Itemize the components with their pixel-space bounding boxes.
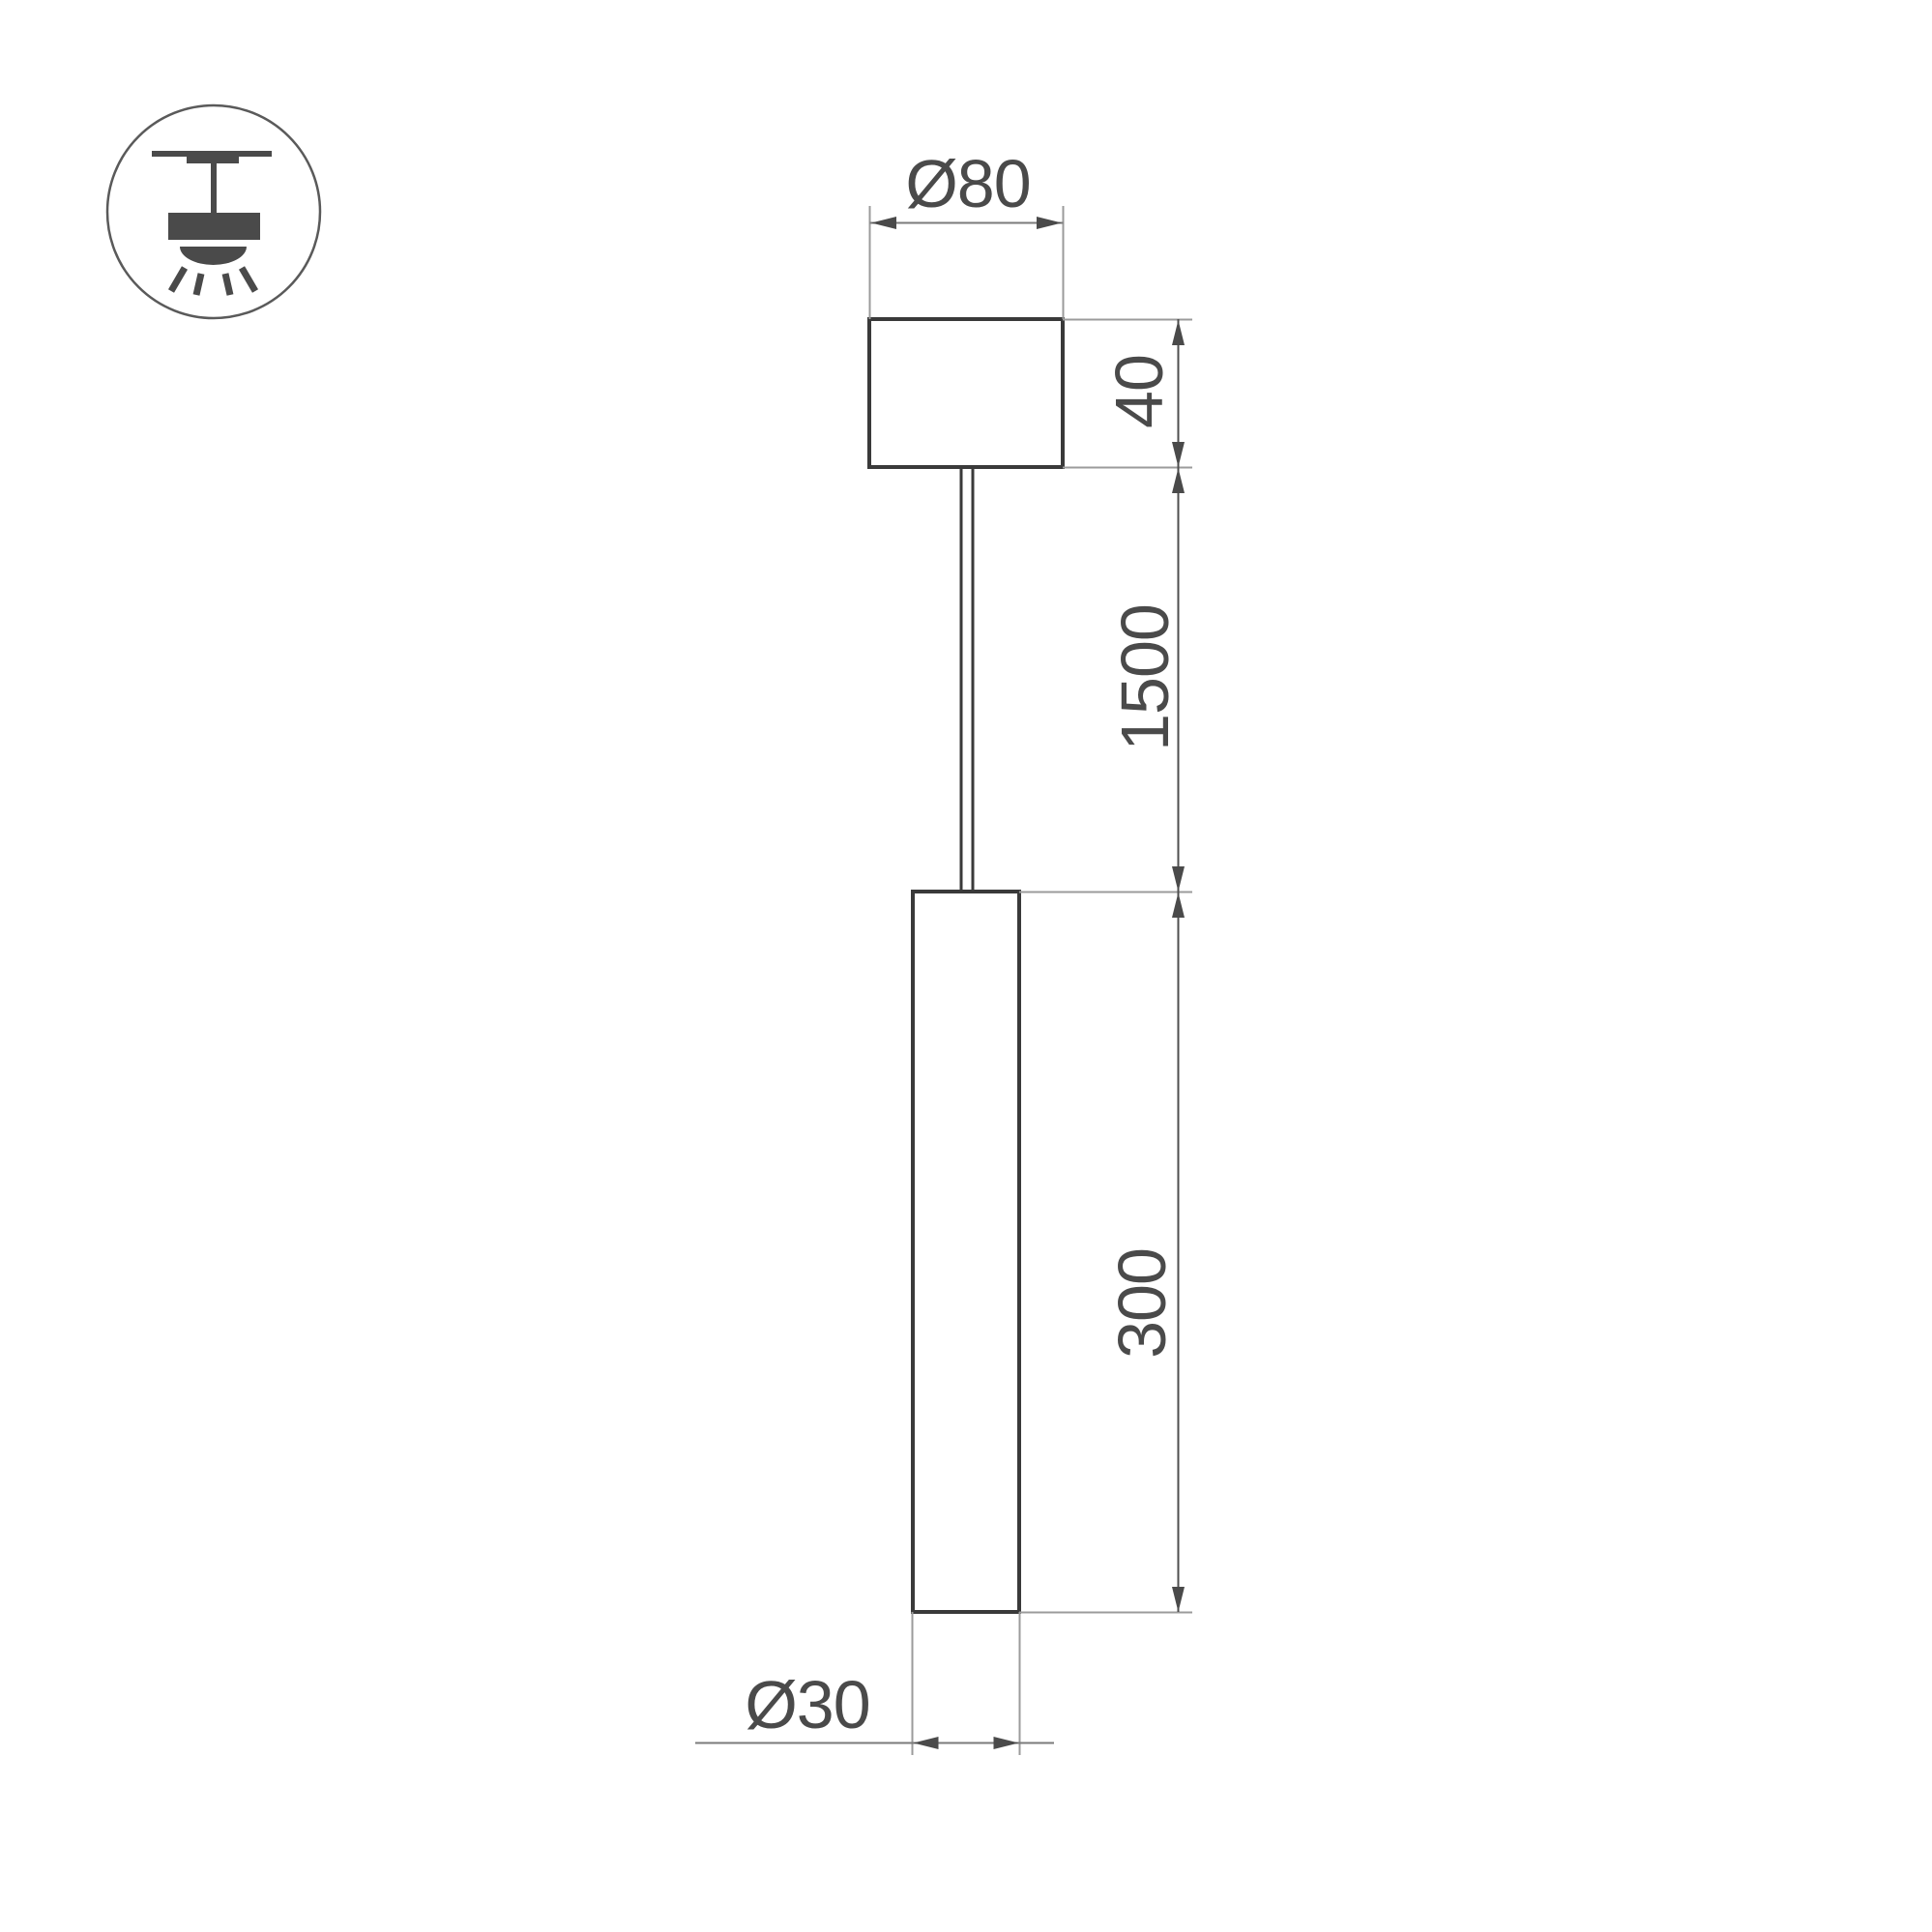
pendant-light-icon: [107, 105, 320, 318]
dim-suspension-length: 1500: [1107, 468, 1185, 892]
label-canopy-height: 40: [1101, 355, 1177, 428]
icon-stem: [211, 163, 217, 215]
icon-ceiling-line: [152, 151, 272, 157]
dim-tube-length: 300: [1104, 893, 1185, 1612]
arrowhead-left: [871, 217, 896, 229]
technical-drawing-page: Ø80 40 1500 300: [0, 0, 1932, 1932]
label-tube-length: 300: [1104, 1248, 1180, 1359]
icon-mount-bar: [187, 157, 239, 163]
label-tube-diameter: Ø30: [745, 1667, 869, 1742]
arrowhead-down: [1172, 1587, 1185, 1612]
lamp-outline: [869, 319, 1063, 1612]
dim-canopy-diameter: Ø80: [870, 146, 1064, 319]
tube-rect: [913, 892, 1019, 1612]
dim-chain-right: 40 1500 300: [1019, 319, 1192, 1613]
dim-tube-diameter: Ø30: [695, 1612, 1054, 1755]
pendant-lamp-dimension-drawing: Ø80 40 1500 300: [0, 0, 1932, 1932]
arrowhead-down: [1172, 866, 1185, 892]
arrowhead-up: [1172, 893, 1185, 918]
arrowhead-right: [1037, 217, 1062, 229]
canopy-rect: [869, 319, 1063, 467]
arrowhead-right: [994, 1737, 1019, 1749]
label-canopy-diameter: Ø80: [905, 146, 1030, 221]
arrowhead-up: [1172, 468, 1185, 493]
icon-lamp-head: [168, 213, 260, 240]
label-suspension-length: 1500: [1107, 604, 1183, 751]
dim-canopy-height: 40: [1101, 320, 1185, 467]
arrowhead-left: [914, 1737, 939, 1749]
arrowhead-down: [1172, 442, 1185, 467]
arrowhead-up: [1172, 320, 1185, 345]
